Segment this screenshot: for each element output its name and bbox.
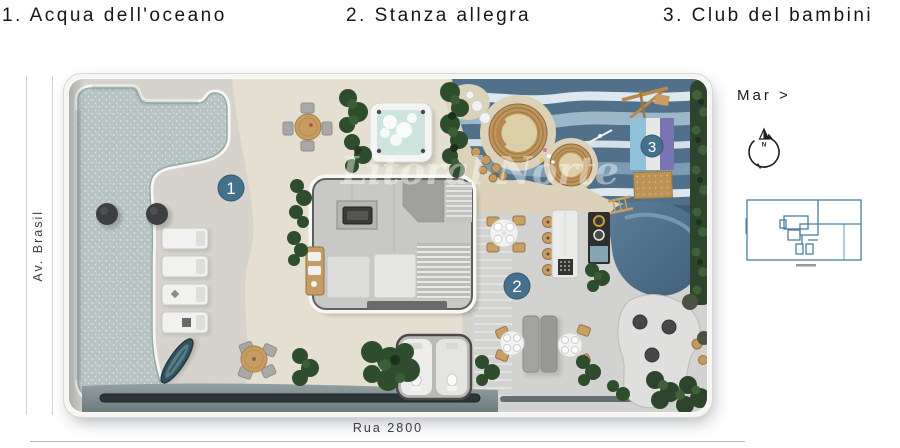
site-location-minimap xyxy=(744,194,866,270)
badge-2-number: 2 xyxy=(512,277,521,296)
minimap-street-mark-bottom xyxy=(796,264,816,267)
roof-panel xyxy=(374,254,416,298)
bar-counter xyxy=(552,210,578,278)
badge-1: 1 xyxy=(218,175,244,201)
minimap-street-mark-left xyxy=(746,218,748,234)
compass-north-label: N xyxy=(762,142,767,149)
balcony xyxy=(306,247,324,295)
watermark: Litoral Norte xyxy=(340,148,619,193)
compass-icon: N xyxy=(736,122,792,178)
badge-1-number: 1 xyxy=(226,179,235,198)
roof-panel xyxy=(327,256,370,298)
building-roof xyxy=(306,177,478,315)
badge-3-number: 3 xyxy=(648,139,656,156)
daybed-sofa xyxy=(523,316,561,376)
edge-shadow xyxy=(69,79,85,412)
skylight xyxy=(337,201,377,229)
kitchen-unit xyxy=(588,212,610,264)
cork-play-mat xyxy=(634,171,673,198)
stairs-main xyxy=(417,243,470,299)
roof-edge-band xyxy=(367,301,447,310)
badge-2: 2 xyxy=(504,273,530,299)
badge-3: 3 xyxy=(641,135,663,157)
